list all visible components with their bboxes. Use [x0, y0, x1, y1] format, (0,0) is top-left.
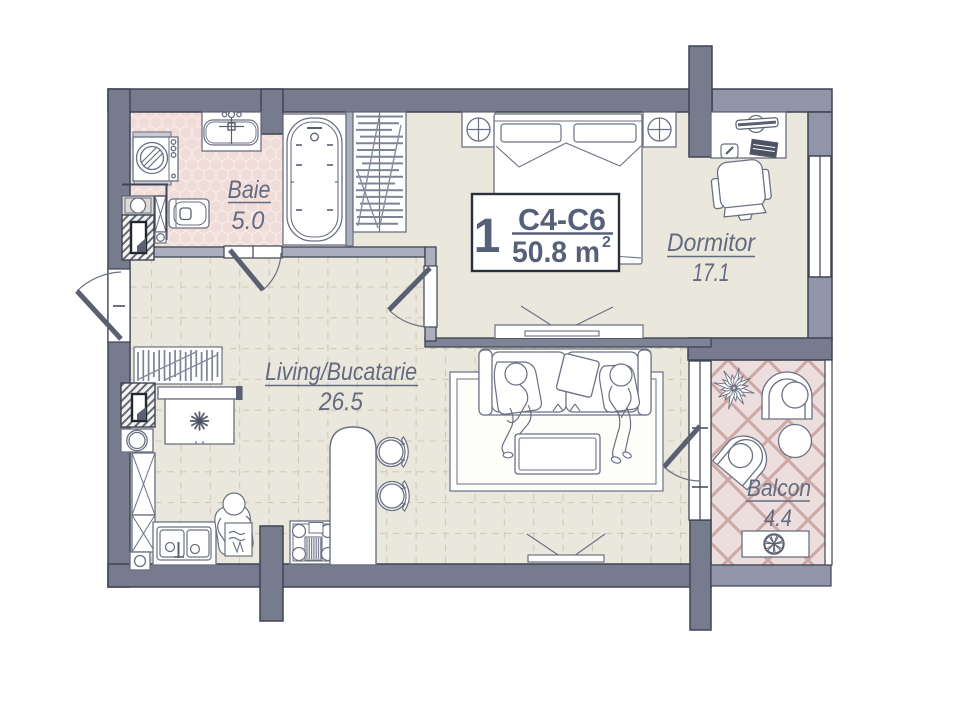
- svg-text:2: 2: [602, 234, 611, 251]
- svg-text:Dormitor: Dormitor: [667, 229, 757, 257]
- svg-text:4.4: 4.4: [764, 505, 792, 532]
- svg-text:Baie: Baie: [228, 176, 271, 204]
- svg-text:Balcon: Balcon: [747, 475, 811, 502]
- svg-text:17.1: 17.1: [693, 259, 730, 287]
- svg-text:5.0: 5.0: [232, 207, 265, 235]
- svg-text:Living/Bucatarie: Living/Bucatarie: [265, 358, 417, 386]
- svg-text:50.8 m: 50.8 m: [512, 236, 600, 269]
- svg-text:26.5: 26.5: [318, 388, 363, 416]
- svg-text:1: 1: [474, 210, 501, 263]
- svg-text:C4-C6: C4-C6: [518, 202, 606, 237]
